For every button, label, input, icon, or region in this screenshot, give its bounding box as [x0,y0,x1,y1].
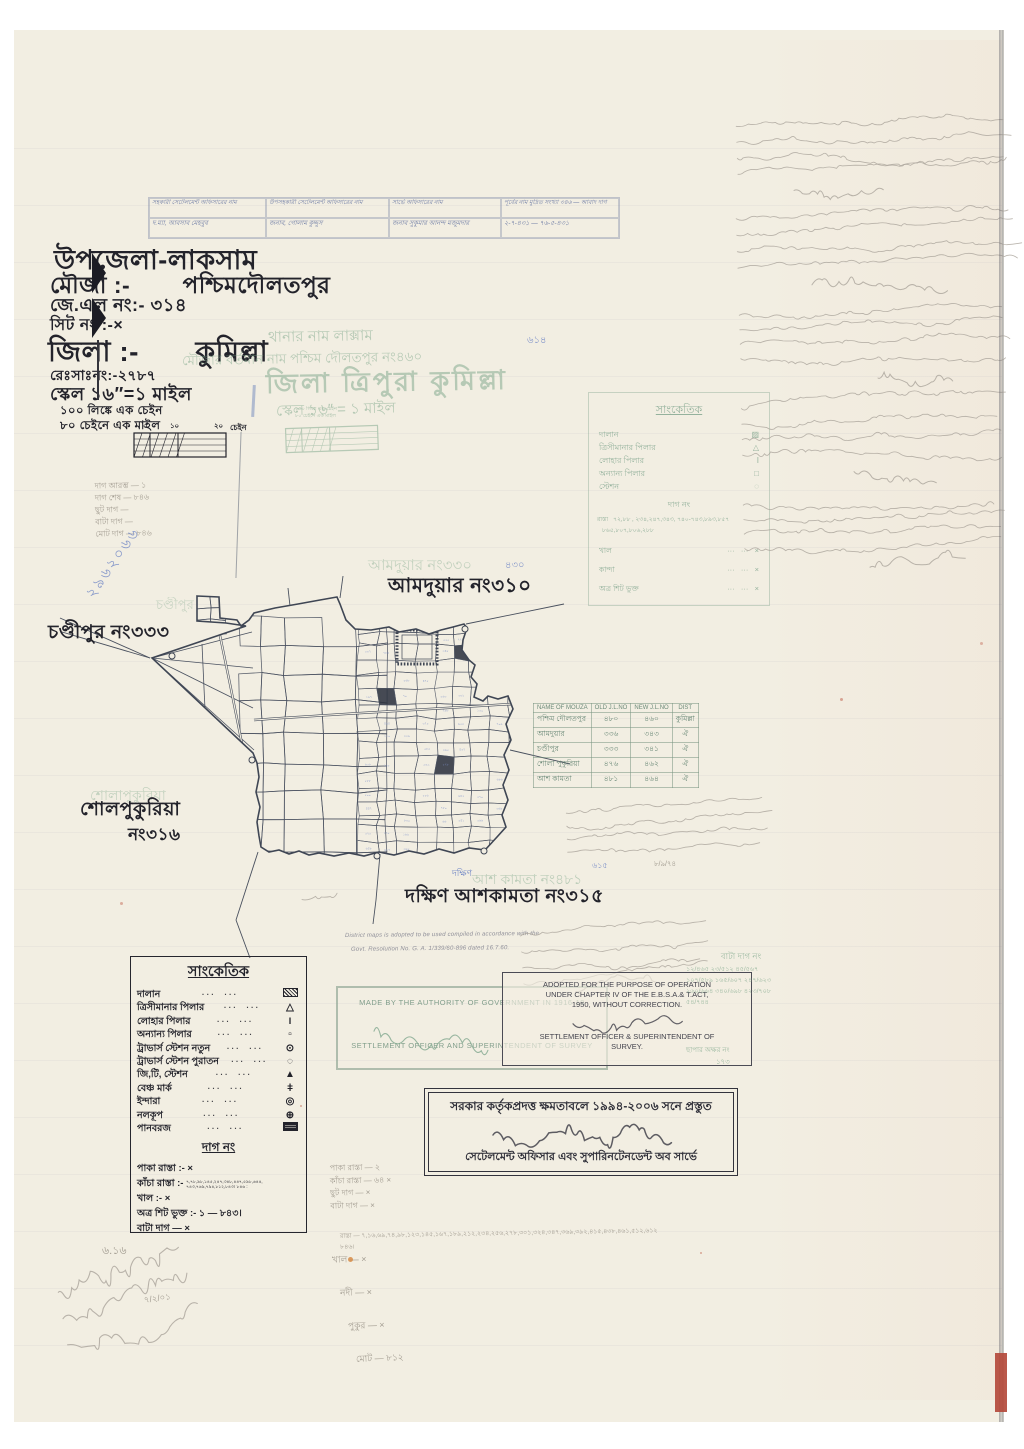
circle-dot-icon: ⊙ [280,1042,300,1055]
pencil-total-list: খাল — ×নদী — ×পুকুর — ×মোট — ৮১২ [332,1252,404,1366]
legend-item: পানবরজ··· ··· [137,1122,300,1135]
square-outline-icon: ▫ [280,1028,300,1041]
blue-ink-stroke [251,385,256,417]
paper-stain [840,698,843,701]
pencil-corner-signature [54,1254,197,1360]
svg-text:৭৪: ৭৪ [404,623,408,627]
pencil-signature [792,182,887,201]
hatch-box-icon [280,988,300,1001]
pencil-line: দাগ আরম্ভ — ১ [94,480,151,493]
mouza-table-cell: ঐ [672,728,698,743]
svg-text:৬৪২: ৬৪২ [458,794,464,798]
mouza-reference-table: NAME OF MOUZAOLD J.L.NONEW J.L.NODISTপশ্… [533,703,699,788]
mouza-table-cell: পশ্চিম দৌলতপুর [534,713,592,728]
mouza-table-cell: ৩৩৬ [591,728,631,743]
svg-text:৬৮৫: ৬৮৫ [515,625,521,629]
svg-text:১৬৯: ১৬৯ [403,833,409,837]
svg-text:৩১৬: ৩১৬ [496,637,502,641]
legend-item: বেঞ্চ মার্ক··· ···ǂ [137,1082,300,1095]
south-neighbor-label: দক্ষিণ আশকামতা নং৩১৫ [405,882,604,914]
scanned-mouza-map-sheet: { "scan": {"paper_color": "#f2eee2", "st… [0,0,1024,1449]
mouza-table-row: পশ্চিম দৌলতপুর৪৮০৪৬০কুমিল্লা [534,713,699,728]
bar-icon: I [280,1015,300,1028]
legend-title: সাংকেতিক [137,961,300,985]
mouza-table-cell: ৪৭৬ [591,758,631,773]
svg-text:৫৩৭: ৫৩৭ [365,650,371,654]
pencil-line: পাকা রাস্তা — ২ [330,1161,392,1175]
pencil-line: ছুট দাগ — × [330,1186,392,1200]
table-cell: দ.ম্যা, আবসাব মেহবুব [149,218,266,238]
adopted-signature [571,1013,681,1034]
survey-officers-table: সহকারী সেটেলমেন্ট অফিসারের নামউপসহকারী স… [148,197,620,239]
table-cell: জনাব, গোলাম কুদ্দুস [266,218,389,238]
svg-text:৩৩১: ৩৩১ [458,694,464,698]
svg-text:৬৫৮: ৬৫৮ [365,763,371,767]
mouza-table-cell: ৩৪৩ [631,728,672,743]
mouza-table-cell: ৪৬২ [631,758,672,773]
stamp-west-neighbor: চণ্ডীপুর [156,596,194,617]
mouza-table-header: DIST [672,704,698,713]
blue-south-word: দক্ষিণ [452,866,472,881]
west-neighbor-label: চণ্ডীপুর নং৩৩৩ [48,618,170,650]
mouza-table-row: আশ কামতা৪৮১৪৬৪ঐ [534,773,699,788]
north-neighbor-label: আমদুয়ার নং৩১০ [388,571,532,604]
svg-text:৭০: ৭০ [403,694,407,698]
svg-text:৫২৮: ৫২৮ [443,763,449,767]
svg-text:৫২৫: ৫২৫ [443,638,449,642]
scale-tick-20: ২০ [214,420,223,432]
mouza-table-cell: কুমিল্লা [672,713,698,728]
circle-cross-icon: ⊕ [280,1109,300,1122]
pencil-line: খাল — × [332,1251,404,1267]
mouza-name: পশ্চিমদৌলতপুর [183,272,331,298]
mouza-table-cell: আমদুয়ার [534,728,592,743]
resolution-line-1: District maps is adopted to be used comp… [345,931,539,939]
mouza-table-cell: ৪৮১ [591,773,631,788]
pencil-annotation-block [741,488,1001,560]
svg-text:৬০৬: ৬০৬ [515,763,521,767]
stamp-legend-row: স্টেশন◌ [589,480,769,493]
legend-dag-item: পাকা রাস্তা :- × [137,1161,300,1176]
svg-text:১১০: ১১০ [384,734,390,738]
pencil-annotation-block [739,393,1003,467]
bata-dag-stamp: বাটা দাগ নং১২/৪৬৫ ২৩/৫১২ ৪৫/৫৬৭১০৭/৫৮৯ ১… [686,950,796,1068]
mouza-table-cell: ঐ [672,758,698,773]
table-header-cell: পূর্বের নাম মুদ্রিত সংখ্যা ৩৪৬ — আবাদ দা… [501,198,619,218]
fold-crease-line [97,340,99,400]
mouza-table-cell: ঐ [672,773,698,788]
pencil-line: নদী — × [340,1284,404,1301]
legend-item: ত্রিসীমানার পিলার··· ···△ [137,1001,300,1014]
bata-row: ৫৪/৭৪৪ [686,997,796,1008]
triangle-outline-icon: △ [280,1001,300,1014]
svg-text:৪৩৭: ৪৩৭ [459,747,465,751]
legend-dag-item: অত্র শিট ভুক্ত :- ১ — ৮৪৩। [137,1206,300,1221]
hatch-box-dense-icon [280,1122,300,1135]
cadastral-map: ৪০৫৭৪৬১৬৮৫৫২৫২২২৩১৬৯৭৫৩৭৭৮৪৩৪৫২০৪৮৩১৩১৫৬… [140,568,570,890]
legend-box: সাংকেতিকদালান··· ···ত্রিসীমানার পিলার···… [130,956,307,1233]
mouza-table-row: শোলা পুকুরিয়া৪৭৬৪৬২ঐ [534,758,699,773]
pencil-annotation-block [564,799,766,863]
svg-text:৭৮০: ৭৮০ [441,806,447,810]
district-label: জিলা :- [48,336,139,367]
southwest-neighbor-number: নং৩১৬ [128,822,181,850]
svg-text:৮৩১: ৮৩১ [497,650,503,654]
legend-item: দালান··· ··· [137,988,300,1001]
svg-text:১৭০: ১৭০ [383,831,389,835]
bata-row: ২৬০/৬৬৪ ৩৪০/৬৯৮ ৪২৩/৭০৮ [686,986,796,997]
pencil-count-list: পাকা রাস্তা — ২কাঁচা রাস্তা — ৬৪ ×ছুট দা… [330,1161,392,1212]
mouza-table-row: আমদুয়ার৩৩৬৩৪৩ঐ [534,728,699,743]
blue-south-number: ৬১৫ [592,860,608,873]
scale-bar [133,430,227,465]
paper-stain [120,902,123,905]
legend-dag-item: বাটা দাগ — × [137,1221,300,1236]
mouza-table-cell: চণ্ডীপুর [534,743,592,758]
mouza-table-row: চণ্ডীপুর৩৩৩৩৪১ঐ [534,743,699,758]
legend-item: ট্রাভার্স স্টেশন নতুন··· ···⊙ [137,1042,300,1055]
stamp-legend-row: কান্দা··· ··· × [589,563,769,576]
legend-item: জি,টি, স্টেশন··· ···▲ [137,1068,300,1081]
legend-item: ইন্দারা··· ···◎ [137,1095,300,1108]
mouza-table-header: NEW J.L.NO [631,704,672,713]
svg-text:৩৬৫: ৩৬৫ [443,748,449,752]
svg-text:৬১৮: ৬১৮ [423,864,429,868]
svg-text:২৩৫: ২৩৫ [384,763,390,767]
pencil-signature [868,554,960,581]
mouza-table-cell: ৪৬০ [631,713,672,728]
legend-item: অন্যান্য পিলার··· ···▫ [137,1028,300,1041]
pencil-small-note [300,890,340,911]
legend-dag-item: খাল :- × [137,1191,300,1206]
svg-text:৪০৫: ৪০৫ [367,624,373,628]
svg-text:৫৪১: ৫৪১ [458,819,464,823]
paper-stain [700,1252,702,1254]
scale-tick-mid: ১০ [170,420,179,432]
bata-footer-value: ১৭৩ [716,1056,796,1068]
prepared-signature [491,1117,671,1152]
svg-text:১৯৭: ১৯৭ [366,695,372,699]
crease-line [235,432,241,578]
svg-text:২০৪: ২০৪ [476,650,482,654]
bata-row: ১২/৪৬৫ ২৩/৫১২ ৪৫/৫৬৭ [686,964,796,975]
svg-text:৫০০: ৫০০ [365,793,371,797]
resolution-line-2: Govt. Resolution No. G. A. 1/339/60-896 … [351,945,509,953]
svg-text:২৭০: ২৭০ [477,795,483,799]
svg-text:৪৭৫: ৪৭৫ [423,679,429,683]
prepared-line1: সরকার কর্তৃকপ্রদত্ত ক্ষমতাবলে ১৯৯৪-২০০৬ … [425,1098,737,1118]
svg-text:৬৫১: ৬৫১ [477,694,483,698]
mouza-table-cell: ৪৬৪ [631,773,672,788]
pencil-annotation-block [734,199,1016,280]
pencil-line: কাঁচা রাস্তা — ৬৪ × [330,1174,392,1188]
svg-text:৫৬৬: ৫৬৬ [477,819,483,823]
mouza-table-header: NAME OF MOUZA [534,704,592,713]
svg-text:৩৬৯: ৩৬৯ [496,806,502,810]
mouza-table-cell: ৪৮০ [591,713,631,728]
legend-item: লোহার পিলার··· ···I [137,1015,300,1028]
pencil-line: ছুট দাগ — [95,504,152,517]
stamp-scale-text: স্কেল ১৬″ = ১ মাইল [276,396,396,424]
double-circle-icon: ◎ [280,1095,300,1108]
stamp-legend-row: অন্যান্য পিলার□ [589,467,769,480]
pencil-road-plots-line: রাস্তা — ৭,১৬,৬৯,৭৪,৯৮,১২৩,১৪৫,১৬৭,১৮৯,২… [340,1225,660,1253]
svg-text:৪৪৭: ৪৪৭ [366,807,372,811]
pencil-date: ৮/৯/৭৪ [654,858,676,870]
svg-text:৫৬৮: ৫৬৮ [403,679,409,683]
svg-text:৫৬৩: ৫৬৩ [440,694,446,698]
legend-dag-title: দাগ নং [137,1139,300,1159]
svg-text:৩৭৫: ৩৭৫ [423,721,429,725]
legend-item: ট্রাভার্স স্টেশন পুরাতন··· ···◌ [137,1055,300,1068]
mouza-table-cell: শোলা পুকুরিয়া [534,758,592,773]
svg-text:৩১: ৩১ [517,665,521,669]
svg-text:৪৯৮: ৪৯৮ [515,722,521,726]
prepared-stamp-box: সরকার কর্তৃকপ্রদত্ত ক্ষমতাবলে ১৯৯৪-২০০৬ … [424,1088,738,1176]
svg-text:৫৫৬: ৫৫৬ [423,794,429,798]
svg-text:৬৫০: ৬৫০ [496,678,502,682]
fold-mark-bottom [92,298,106,338]
mouza-table-cell: ৩৩৩ [591,743,631,758]
pencil-signature [876,366,956,391]
svg-text:১৫০: ১৫০ [477,708,483,712]
mouza-table-header: OLD J.L.NO [591,704,631,713]
svg-text:৮৩০: ৮৩০ [404,819,410,823]
pencil-annotation-block [737,297,1005,369]
svg-text:৬৮৬: ৬৮৬ [497,777,503,781]
legend-item: নলকূপ··· ···⊕ [137,1109,300,1122]
bata-footer: ছাপার অক্ষর নং [686,1044,796,1056]
paper-stain [348,1257,353,1262]
paper-stain [300,1105,302,1107]
mouza-table-cell: আশ কামতা [534,773,592,788]
pencil-signature [852,462,940,483]
mouza-table-cell: ঐ [672,743,698,758]
scan-edge-red-strip [995,1353,1007,1412]
pencil-line: মোট — ৮১২ [356,1350,404,1367]
pencil-signature [810,274,940,297]
blue-mark-614: ৬১৪ [527,333,546,350]
svg-text:৩৭৩: ৩৭৩ [423,763,429,767]
stamp-scale-bar [284,422,379,460]
svg-text:৬৫৩: ৬৫৩ [458,722,464,726]
svg-text:৫৮৩: ৫৮৩ [424,747,430,751]
scale-tick-0: ০ [143,420,148,432]
made-by-signature [372,1018,492,1042]
svg-text:৬৬: ৬৬ [442,820,446,824]
triangle-filled-icon: ▲ [280,1068,300,1081]
svg-text:৬৪৮: ৬৪৮ [366,846,372,850]
fold-mark-top [92,253,106,293]
svg-text:৭০৯: ৭০৯ [496,722,502,726]
svg-text:৭৮৪: ৭৮৪ [383,651,389,655]
circle-dashed-icon: ◌ [280,1055,300,1068]
svg-text:৫৮৮: ৫৮৮ [365,779,371,783]
pencil-line: পুকুর — × [348,1317,404,1334]
svg-text:৫২৫: ৫২৫ [365,832,371,836]
table-header-cell: সহকারী সেটেলমেন্ট অফিসারের নাম [149,198,266,218]
pencil-annotation-block [734,107,1008,185]
map-sheet-paper: সহকারী সেটেলমেন্ট অফিসারের নামউপসহকারী স… [14,30,1004,1422]
pencil-line: বাটা দাগ — × [330,1199,392,1213]
scan-edge-shadow [999,30,1003,1422]
bata-title: বাটা দাগ নং [686,950,796,964]
table-header-cell: উপসহকারী সেটেলমেন্ট অফিসারের নাম [266,198,389,218]
mouza-table-cell: ৩৪১ [631,743,672,758]
paper-stain [980,642,983,645]
table-cell: ২-৭-৪৩১ — ৭৬-৫-৪৩১ [501,218,619,238]
legend-dag-item: কাঁচা রাস্তা :- ৭,৭৮,৯৮,১৪৫,২৪৭,৩৪৮,৪৪৭,… [137,1176,300,1191]
svg-text:৩৪৫: ৩৪৫ [443,649,449,653]
svg-text:৯৭: ৯৭ [517,637,521,641]
svg-text:৩২৯: ৩২৯ [404,734,410,738]
pencil-line: দাগ শেষ — ৮৪৬ [95,492,152,505]
bata-row: ১০৭/৫৮৯ ১৬৫/৬০৭ ২৪৭/৬২৩ [686,975,796,986]
map-plot-network: ৪০৫৭৪৬১৬৮৫৫২৫২২২৩১৬৯৭৫৩৭৭৮৪৩৪৫২০৪৮৩১৩১৫৬… [140,568,570,890]
svg-text:৭০৭: ৭০৭ [385,863,391,867]
svg-text:১৭৭: ১৭৭ [515,833,521,837]
table-cell: জনাব সুকুমার আনন্দ মজুমদার [389,218,501,238]
pencil-corner-note: ৬.১৬ [102,1242,127,1261]
stamp-legend-row: অত্র শিট ভুক্ত··· ··· × [589,582,769,595]
benchmark-icon: ǂ [280,1082,300,1095]
table-header-cell: সার্ভে অফিসারের নাম [389,198,501,218]
svg-text:১৫৪: ১৫৪ [495,848,501,852]
svg-text:৪৯৪: ৪৯৪ [384,721,390,725]
svg-text:৬১৭: ৬১৭ [384,848,390,852]
scale-unit: চেইন [230,422,247,435]
